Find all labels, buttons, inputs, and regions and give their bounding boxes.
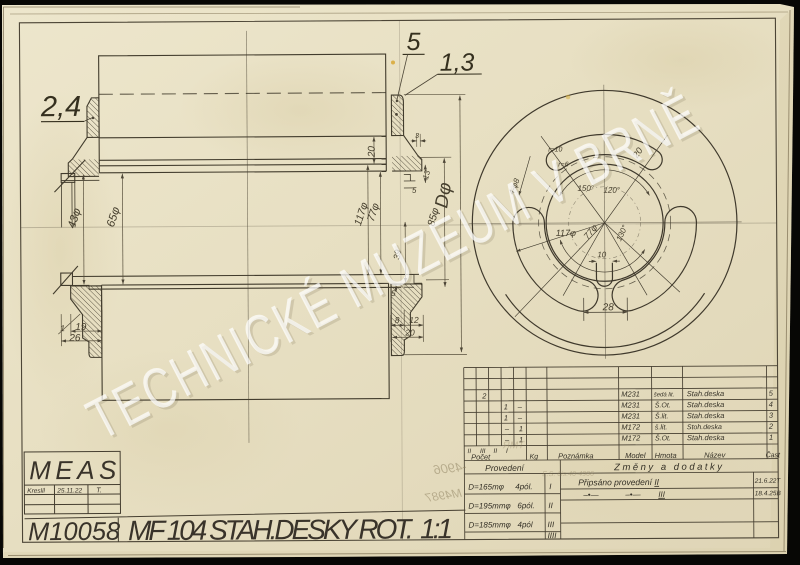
svg-text:Čast: Čast	[766, 450, 782, 459]
svg-text:20: 20	[404, 327, 415, 337]
svg-text:Název: Název	[704, 451, 727, 460]
svg-text:117φ: 117φ	[556, 228, 576, 238]
svg-text:5: 5	[406, 28, 420, 56]
svg-text:MEAS: MEAS	[29, 455, 121, 486]
svg-text:M172: M172	[621, 434, 641, 443]
svg-text:–: –	[517, 402, 523, 411]
svg-text:Připsáno provedení II: Připsáno provedení II	[578, 477, 659, 487]
svg-text:Model: Model	[625, 451, 646, 460]
svg-text:4: 4	[769, 400, 773, 409]
svg-text:MF 104 STAH.DESKY ROT. 1:1: MF 104 STAH.DESKY ROT. 1:1	[128, 513, 453, 546]
svg-text:Stah.deska: Stah.deska	[687, 400, 725, 409]
svg-text:8: 8	[395, 315, 400, 325]
svg-text:Stah.deska: Stah.deska	[687, 433, 725, 442]
svg-text:Kg: Kg	[530, 454, 539, 461]
svg-text:4pól: 4pól	[517, 520, 532, 529]
svg-text:Hmota: Hmota	[655, 451, 677, 460]
svg-text:12: 12	[409, 315, 419, 325]
svg-text:Stoh.deska: Stoh.deska	[687, 424, 722, 431]
svg-text:1: 1	[504, 402, 508, 411]
svg-text:Kreslil: Kreslil	[27, 488, 45, 495]
svg-text:10: 10	[597, 250, 607, 259]
svg-text:1: 1	[504, 413, 508, 422]
svg-text:21.6.22Τ: 21.6.22Τ	[754, 478, 782, 485]
svg-text:Stah.deska: Stah.deska	[687, 389, 725, 398]
svg-text:4pól.: 4pól.	[515, 482, 532, 491]
svg-text:M10058: M10058	[28, 518, 121, 547]
svg-text:M172: M172	[621, 423, 641, 432]
svg-text:2,4: 2,4	[40, 91, 82, 123]
svg-text:T.: T.	[96, 487, 102, 494]
svg-text:–: –	[517, 413, 523, 422]
svg-text:D=195mmφ: D=195mmφ	[468, 501, 510, 510]
svg-text:M231: M231	[621, 401, 640, 410]
svg-text:2: 2	[768, 422, 774, 431]
svg-text:ЯMT: ЯMT	[502, 440, 525, 451]
svg-text:1: 1	[519, 424, 523, 433]
svg-text:1: 1	[60, 323, 65, 333]
svg-text:5: 5	[412, 186, 417, 195]
svg-text:1: 1	[769, 433, 773, 442]
svg-text:1,3: 1,3	[440, 49, 475, 77]
svg-text:19: 19	[75, 322, 87, 333]
svg-text:20: 20	[367, 146, 378, 159]
svg-text:III: III	[658, 490, 666, 499]
svg-text:Š.lit.: Š.lit.	[655, 411, 669, 420]
svg-text:Š.Ot.: Š.Ot.	[655, 400, 671, 409]
svg-text:–: –	[504, 424, 510, 433]
svg-text:D=185mmφ: D=185mmφ	[468, 520, 510, 529]
svg-text:Stah.deska: Stah.deska	[687, 411, 725, 420]
svg-text:Provedení: Provedení	[485, 463, 525, 473]
svg-text:–•—: –•—	[582, 490, 599, 499]
svg-text:E.S. čís.40-4906: E.S. čís.40-4906	[542, 471, 594, 478]
svg-text:Š.Ot.: Š.Ot.	[655, 433, 671, 442]
svg-text:M231: M231	[621, 390, 640, 399]
svg-text:II: II	[494, 448, 498, 455]
svg-text:šedá lit.: šedá lit.	[654, 392, 675, 398]
svg-text:28: 28	[602, 302, 615, 313]
svg-text:M231: M231	[621, 412, 640, 421]
svg-text:18.4.25Β: 18.4.25Β	[755, 490, 782, 497]
svg-text:25.11.22: 25.11.22	[56, 487, 82, 494]
svg-text:–•—: –•—	[624, 490, 641, 499]
svg-text:Počet: Počet	[471, 452, 491, 461]
svg-text:26: 26	[68, 333, 81, 344]
svg-text:Změny a dodatky: Změny a dodatky	[613, 462, 724, 474]
svg-text:3: 3	[415, 133, 419, 140]
svg-text:2: 2	[481, 391, 487, 400]
svg-text:6pól.: 6pól.	[517, 501, 534, 510]
svg-text:IIII: IIII	[548, 531, 558, 540]
svg-text:D=165mφ: D=165mφ	[468, 482, 504, 491]
svg-text:III: III	[547, 520, 555, 529]
svg-text:š.lit.: š.lit.	[655, 424, 668, 431]
svg-text:Poznámka: Poznámka	[558, 451, 593, 460]
